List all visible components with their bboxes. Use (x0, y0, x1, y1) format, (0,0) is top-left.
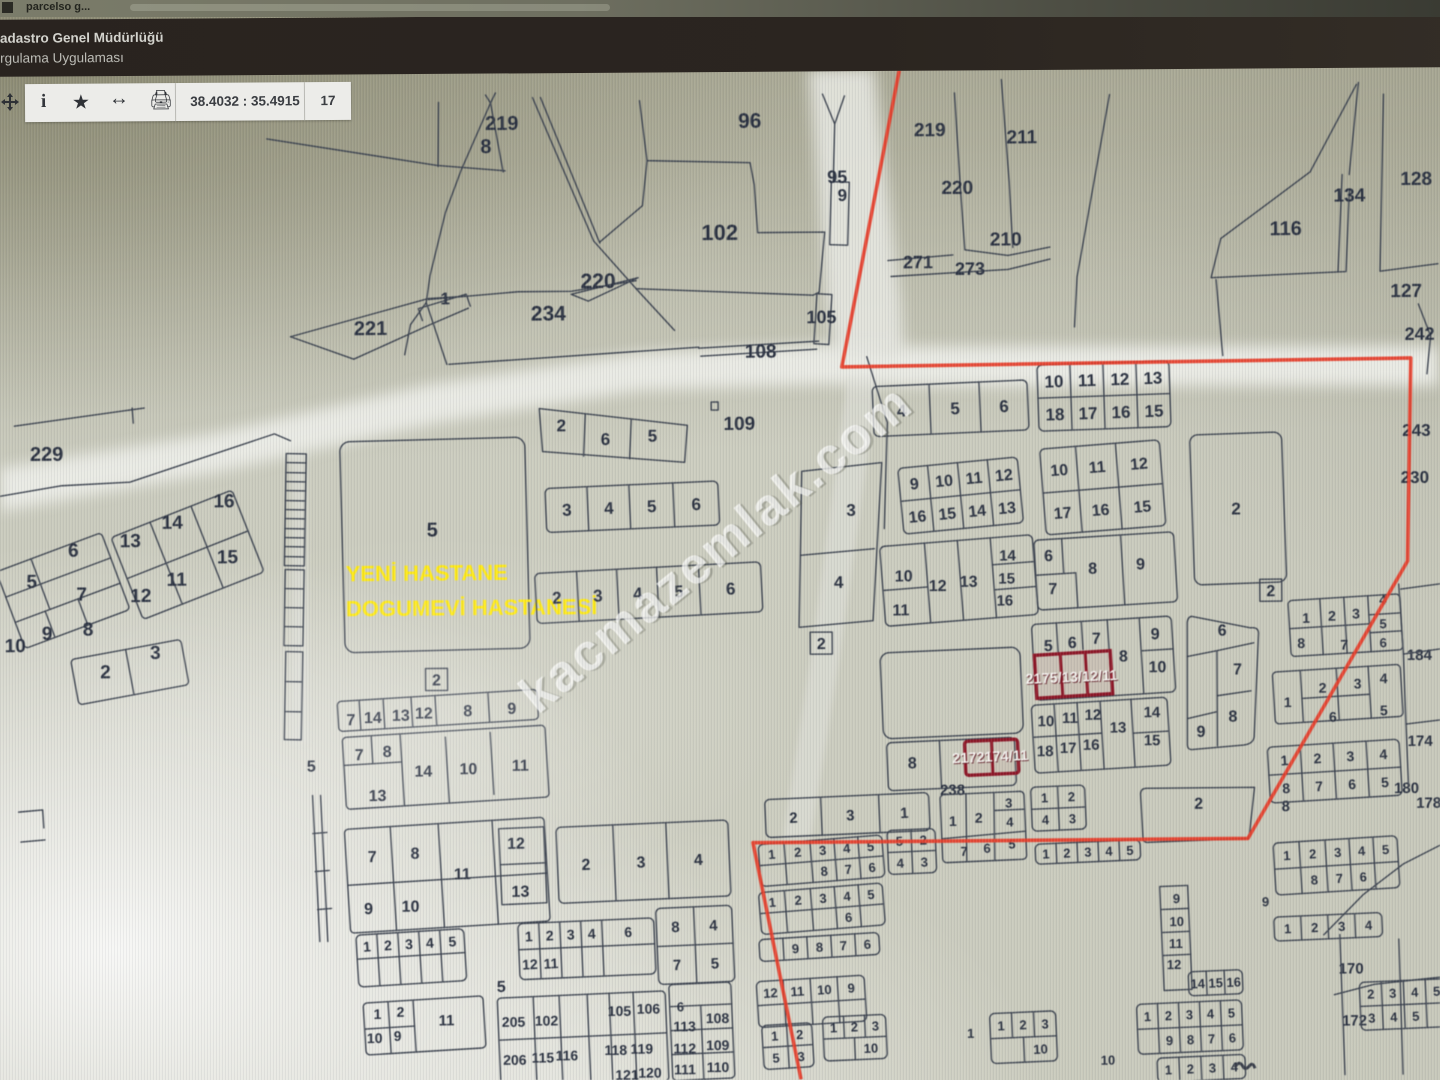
svg-text:16: 16 (996, 592, 1013, 609)
svg-text:15: 15 (1144, 732, 1161, 749)
svg-text:2: 2 (1068, 789, 1076, 804)
svg-text:12: 12 (994, 467, 1013, 486)
svg-text:5: 5 (1126, 843, 1134, 858)
svg-text:4: 4 (834, 573, 844, 592)
svg-text:9: 9 (1151, 626, 1160, 643)
svg-text:3: 3 (1368, 1010, 1376, 1025)
svg-text:9: 9 (838, 186, 848, 205)
svg-text:3: 3 (1346, 748, 1355, 764)
svg-text:11: 11 (892, 602, 909, 619)
svg-text:18: 18 (1045, 405, 1065, 425)
svg-text:9: 9 (847, 980, 855, 995)
svg-text:219: 219 (914, 120, 946, 141)
svg-text:1: 1 (1284, 921, 1292, 936)
svg-text:221: 221 (354, 318, 388, 340)
svg-text:5: 5 (1044, 638, 1053, 655)
svg-text:5: 5 (427, 519, 438, 541)
svg-text:1: 1 (997, 1018, 1005, 1033)
svg-text:13: 13 (369, 788, 387, 805)
svg-text:11: 11 (543, 955, 559, 972)
svg-text:2: 2 (789, 810, 798, 827)
svg-text:112: 112 (673, 1040, 696, 1056)
svg-text:4: 4 (1379, 746, 1388, 762)
svg-text:13: 13 (997, 500, 1016, 519)
svg-text:14: 14 (968, 502, 987, 521)
svg-text:8: 8 (1119, 648, 1128, 665)
svg-text:10: 10 (935, 472, 954, 491)
svg-text:243: 243 (1402, 421, 1431, 440)
svg-text:8: 8 (820, 863, 828, 879)
svg-text:2: 2 (817, 636, 826, 653)
svg-text:127: 127 (1390, 281, 1422, 302)
svg-text:4: 4 (709, 917, 719, 934)
svg-text:17: 17 (1078, 404, 1098, 424)
svg-text:8: 8 (411, 846, 420, 863)
svg-text:13: 13 (1110, 719, 1127, 736)
svg-text:1: 1 (949, 813, 957, 829)
svg-text:6: 6 (1068, 635, 1077, 652)
svg-text:12: 12 (1110, 370, 1130, 390)
svg-text:3: 3 (819, 891, 827, 907)
svg-text:8: 8 (1282, 780, 1291, 796)
svg-text:2: 2 (1186, 1061, 1194, 1076)
svg-text:10: 10 (895, 568, 913, 585)
svg-text:1: 1 (768, 847, 776, 863)
svg-text:11: 11 (439, 1012, 455, 1029)
svg-text:3: 3 (872, 1018, 880, 1033)
svg-text:3: 3 (150, 643, 161, 664)
svg-text:6: 6 (1380, 635, 1387, 650)
svg-text:3: 3 (1068, 811, 1076, 826)
svg-text:5: 5 (1381, 774, 1390, 790)
svg-text:8: 8 (815, 939, 823, 954)
svg-text:11: 11 (167, 570, 188, 591)
svg-text:8: 8 (1228, 708, 1237, 725)
svg-text:3: 3 (1208, 1060, 1216, 1075)
svg-text:3: 3 (846, 501, 856, 520)
svg-text:234: 234 (531, 302, 567, 325)
svg-text:kacmazemlak.com: kacmazemlak.com (509, 373, 924, 724)
svg-text:2: 2 (100, 662, 111, 683)
svg-text:7: 7 (1335, 871, 1343, 886)
svg-text:2: 2 (794, 845, 802, 861)
svg-text:10: 10 (1044, 372, 1064, 392)
svg-text:2: 2 (794, 893, 802, 909)
svg-text:5: 5 (772, 1050, 780, 1065)
svg-text:8: 8 (1088, 561, 1097, 578)
svg-text:8: 8 (1297, 635, 1305, 651)
svg-text:7: 7 (1048, 581, 1057, 598)
svg-text:4: 4 (1006, 814, 1014, 829)
svg-text:120: 120 (638, 1065, 662, 1080)
svg-text:13: 13 (1143, 368, 1163, 388)
svg-text:5: 5 (1379, 616, 1386, 631)
svg-text:9: 9 (42, 624, 53, 645)
svg-text:12: 12 (130, 586, 151, 607)
svg-text:2: 2 (1328, 608, 1336, 624)
svg-text:10: 10 (367, 1030, 383, 1046)
svg-text:6: 6 (677, 999, 684, 1014)
svg-text:3: 3 (405, 936, 414, 952)
svg-text:15: 15 (1208, 975, 1223, 991)
svg-text:12: 12 (1084, 707, 1101, 724)
svg-text:3: 3 (1334, 845, 1342, 860)
svg-text:4: 4 (843, 889, 852, 905)
svg-text:9: 9 (1136, 556, 1145, 573)
svg-text:9: 9 (394, 1028, 402, 1044)
svg-text:7: 7 (1208, 1031, 1216, 1046)
svg-text:1: 1 (768, 895, 776, 911)
svg-text:10: 10 (1033, 1041, 1048, 1057)
svg-text:13: 13 (511, 884, 529, 901)
svg-text:4: 4 (1380, 670, 1388, 686)
svg-text:4: 4 (426, 934, 435, 950)
svg-text:16: 16 (908, 508, 927, 527)
svg-text:2: 2 (545, 927, 554, 943)
svg-text:108: 108 (706, 1010, 730, 1026)
svg-text:13: 13 (960, 574, 978, 591)
svg-text:5: 5 (950, 399, 960, 418)
svg-text:5: 5 (497, 979, 506, 996)
svg-text:2: 2 (1309, 846, 1317, 861)
svg-text:7: 7 (355, 747, 364, 764)
svg-text:12: 12 (507, 836, 525, 853)
svg-text:10: 10 (863, 1040, 878, 1056)
svg-text:1: 1 (830, 1020, 838, 1035)
svg-text:16: 16 (1226, 974, 1241, 990)
svg-text:10: 10 (1101, 1053, 1116, 1068)
svg-text:8: 8 (83, 619, 94, 640)
svg-text:5: 5 (648, 427, 658, 446)
svg-text:7: 7 (368, 849, 377, 866)
svg-text:3: 3 (1352, 605, 1360, 621)
svg-text:1: 1 (900, 805, 909, 822)
svg-text:7: 7 (1233, 661, 1242, 678)
svg-text:8: 8 (671, 919, 680, 936)
svg-text:1: 1 (967, 1026, 974, 1041)
svg-text:3: 3 (593, 586, 603, 605)
svg-text:16: 16 (1111, 403, 1131, 423)
svg-text:3: 3 (920, 854, 928, 869)
svg-text:14: 14 (1143, 704, 1160, 721)
svg-text:2: 2 (1164, 1008, 1172, 1023)
svg-text:13: 13 (120, 531, 141, 552)
svg-text:178: 178 (1416, 795, 1440, 812)
svg-text:2: 2 (432, 672, 441, 689)
svg-text:11: 11 (1169, 936, 1183, 951)
svg-text:4: 4 (1411, 985, 1420, 1000)
svg-text:1: 1 (1164, 1062, 1172, 1077)
svg-text:2: 2 (552, 588, 562, 607)
svg-text:3: 3 (846, 807, 855, 824)
svg-text:9: 9 (507, 701, 516, 718)
svg-text:8: 8 (908, 755, 917, 772)
svg-text:5: 5 (1227, 1005, 1235, 1020)
svg-text:210: 210 (990, 229, 1022, 250)
svg-text:11: 11 (1078, 371, 1097, 391)
svg-text:2: 2 (1313, 750, 1322, 766)
svg-text:4: 4 (604, 499, 615, 518)
svg-text:16: 16 (1091, 502, 1110, 520)
svg-text:11: 11 (790, 983, 805, 999)
svg-text:8: 8 (480, 136, 491, 158)
svg-text:6: 6 (1359, 869, 1367, 884)
svg-text:106: 106 (637, 1001, 661, 1017)
svg-text:219: 219 (485, 113, 519, 135)
svg-text:5: 5 (710, 955, 719, 972)
svg-text:15: 15 (217, 547, 239, 568)
svg-text:2: 2 (1266, 583, 1275, 600)
svg-text:16: 16 (1083, 737, 1100, 754)
svg-text:6: 6 (624, 924, 633, 940)
svg-text:11: 11 (965, 470, 984, 489)
svg-text:7: 7 (1315, 778, 1324, 794)
svg-text:105: 105 (608, 1003, 632, 1019)
svg-text:8: 8 (1187, 1032, 1195, 1047)
svg-text:8: 8 (1310, 872, 1318, 887)
svg-text:18: 18 (1037, 743, 1054, 760)
svg-text:5: 5 (307, 759, 316, 776)
svg-text:2: 2 (1367, 986, 1375, 1001)
svg-text:9: 9 (1262, 894, 1269, 909)
svg-text:7: 7 (1340, 637, 1348, 653)
svg-text:7: 7 (844, 862, 852, 878)
svg-text:116: 116 (1269, 218, 1301, 240)
svg-text:7: 7 (76, 585, 87, 606)
svg-text:14: 14 (1190, 976, 1206, 992)
svg-text:118: 118 (604, 1042, 627, 1058)
svg-text:2: 2 (1231, 499, 1241, 518)
svg-text:170: 170 (1339, 960, 1364, 977)
svg-text:2: 2 (396, 1004, 404, 1020)
svg-text:273: 273 (955, 259, 985, 279)
svg-text:115: 115 (531, 1049, 554, 1065)
svg-text:119: 119 (630, 1041, 653, 1057)
svg-text:3: 3 (1338, 919, 1346, 934)
svg-text:6: 6 (1348, 776, 1357, 792)
svg-text:9: 9 (909, 476, 920, 494)
svg-text:2: 2 (975, 810, 983, 826)
svg-text:5: 5 (1412, 1009, 1420, 1024)
svg-text:220: 220 (580, 270, 615, 293)
svg-text:9: 9 (791, 941, 799, 956)
svg-text:1: 1 (1144, 1009, 1152, 1024)
svg-text:9: 9 (364, 901, 373, 918)
svg-text:4: 4 (1365, 918, 1374, 933)
svg-text:12: 12 (929, 578, 947, 595)
svg-text:2: 2 (1319, 680, 1327, 696)
svg-text:7: 7 (839, 938, 847, 953)
svg-text:105: 105 (806, 307, 836, 327)
svg-text:13: 13 (392, 708, 410, 725)
svg-text:4: 4 (1105, 844, 1114, 859)
svg-text:6: 6 (691, 495, 701, 514)
svg-text:1: 1 (1302, 610, 1310, 626)
svg-text:6: 6 (1229, 1030, 1237, 1045)
svg-text:271: 271 (903, 252, 933, 272)
svg-text:6: 6 (1218, 623, 1227, 640)
svg-text:3: 3 (1185, 1007, 1193, 1022)
svg-text:3: 3 (636, 854, 646, 871)
svg-text:YENİ HASTANE: YENİ HASTANE (346, 560, 508, 586)
svg-text:4: 4 (1390, 1009, 1399, 1024)
svg-text:3: 3 (1084, 844, 1092, 859)
svg-text:11: 11 (1062, 710, 1078, 727)
svg-text:10: 10 (402, 899, 420, 916)
svg-text:10: 10 (817, 982, 832, 998)
svg-text:9: 9 (1173, 891, 1180, 906)
svg-text:7: 7 (346, 712, 355, 729)
svg-text:2: 2 (581, 857, 591, 874)
svg-text:17: 17 (1060, 740, 1077, 757)
svg-text:6: 6 (983, 841, 990, 856)
svg-text:10: 10 (1050, 462, 1069, 480)
svg-text:102: 102 (535, 1012, 559, 1028)
svg-text:12: 12 (1130, 456, 1149, 474)
svg-text:113: 113 (673, 1018, 696, 1034)
svg-text:11: 11 (454, 866, 471, 883)
svg-text:5: 5 (1380, 702, 1388, 718)
svg-text:5: 5 (867, 887, 875, 903)
svg-text:4: 4 (694, 852, 704, 869)
svg-text:14: 14 (999, 547, 1016, 564)
svg-text:109: 109 (723, 414, 755, 435)
svg-text:11: 11 (1088, 459, 1106, 477)
svg-text:5: 5 (448, 933, 457, 949)
svg-text:206: 206 (503, 1052, 527, 1068)
svg-text:110: 110 (707, 1059, 730, 1075)
svg-text:7: 7 (960, 844, 967, 859)
svg-text:8: 8 (463, 703, 472, 720)
svg-text:7: 7 (1092, 631, 1101, 648)
svg-text:10: 10 (1149, 659, 1167, 676)
svg-text:1: 1 (1041, 790, 1049, 805)
svg-text:230: 230 (1401, 468, 1430, 487)
svg-text:10: 10 (459, 761, 477, 778)
svg-text:12: 12 (763, 985, 778, 1001)
svg-text:1: 1 (1284, 694, 1292, 710)
svg-text:238: 238 (940, 782, 965, 799)
svg-text:220: 220 (941, 178, 973, 199)
svg-text:6: 6 (999, 397, 1009, 416)
svg-text:1: 1 (525, 928, 534, 944)
svg-text:211: 211 (1006, 127, 1037, 148)
svg-text:9: 9 (1166, 1033, 1174, 1048)
svg-text:2: 2 (557, 416, 567, 435)
svg-text:229: 229 (30, 444, 64, 466)
svg-text:15: 15 (938, 505, 957, 524)
svg-text:2: 2 (851, 1019, 859, 1034)
svg-text:5: 5 (26, 572, 37, 593)
svg-text:12: 12 (522, 956, 538, 973)
svg-text:2: 2 (796, 1027, 804, 1042)
svg-text:242: 242 (1404, 324, 1434, 344)
svg-text:6: 6 (863, 937, 871, 952)
svg-text:4: 4 (896, 855, 905, 870)
svg-text:1: 1 (1283, 848, 1291, 863)
svg-text:6: 6 (1044, 548, 1053, 565)
svg-text:109: 109 (706, 1037, 730, 1053)
svg-text:3: 3 (1354, 675, 1362, 691)
svg-text:4: 4 (1358, 843, 1367, 858)
svg-text:1: 1 (440, 289, 450, 308)
svg-text:6: 6 (601, 430, 611, 449)
svg-text:2: 2 (384, 937, 393, 953)
svg-text:9: 9 (1197, 724, 1206, 741)
svg-text:1: 1 (771, 1028, 779, 1043)
svg-text:2: 2 (1063, 845, 1071, 860)
svg-text:4: 4 (587, 925, 596, 941)
svg-text:4: 4 (1206, 1006, 1215, 1021)
svg-text:16: 16 (213, 491, 234, 512)
svg-text:15: 15 (1133, 498, 1152, 516)
svg-text:1: 1 (1042, 846, 1050, 861)
svg-text:17: 17 (1053, 505, 1072, 523)
svg-text:96: 96 (738, 110, 762, 133)
svg-text:14: 14 (364, 710, 382, 727)
svg-text:2: 2 (1019, 1017, 1027, 1032)
svg-text:108: 108 (745, 342, 777, 363)
svg-text:121: 121 (615, 1067, 639, 1080)
svg-text:12: 12 (1167, 957, 1182, 972)
svg-text:14: 14 (414, 764, 432, 781)
svg-text:205: 205 (502, 1014, 526, 1030)
svg-text:174: 174 (1408, 733, 1434, 750)
svg-text:6: 6 (1329, 709, 1337, 725)
svg-text:11: 11 (512, 758, 529, 775)
svg-text:10: 10 (5, 636, 26, 657)
svg-text:1: 1 (363, 938, 372, 954)
svg-text:5: 5 (1382, 842, 1390, 857)
svg-text:3: 3 (1389, 986, 1397, 1001)
svg-text:5: 5 (1433, 984, 1440, 999)
svg-text:3: 3 (1041, 1016, 1049, 1031)
svg-text:3: 3 (1005, 795, 1012, 810)
svg-text:95: 95 (827, 167, 847, 187)
svg-text:3: 3 (562, 501, 572, 520)
svg-text:2: 2 (1311, 920, 1319, 935)
svg-text:15: 15 (1144, 401, 1164, 421)
svg-text:102: 102 (701, 220, 738, 245)
svg-text:10: 10 (1169, 914, 1184, 929)
svg-text:111: 111 (674, 1061, 696, 1077)
svg-text:6: 6 (68, 541, 79, 562)
svg-text:7: 7 (673, 957, 682, 974)
svg-text:128: 128 (1400, 169, 1432, 190)
svg-text:14: 14 (162, 513, 184, 534)
svg-text:5: 5 (647, 497, 657, 516)
svg-text:6: 6 (868, 860, 876, 876)
svg-text:15: 15 (998, 570, 1015, 587)
svg-text:3: 3 (818, 843, 826, 859)
svg-text:6: 6 (844, 910, 852, 926)
svg-text:12: 12 (415, 706, 433, 723)
svg-text:172: 172 (1342, 1012, 1367, 1029)
svg-text:10: 10 (1038, 713, 1055, 730)
svg-text:184: 184 (1407, 647, 1433, 664)
svg-text:8: 8 (383, 744, 392, 761)
svg-text:2: 2 (1194, 796, 1203, 813)
svg-text:8: 8 (1281, 798, 1289, 815)
svg-text:2172174/11: 2172174/11 (952, 748, 1028, 767)
svg-text:4: 4 (1042, 812, 1051, 827)
svg-text:3: 3 (566, 926, 575, 942)
svg-text:116: 116 (555, 1047, 578, 1063)
svg-text:1: 1 (374, 1006, 382, 1022)
svg-text:134: 134 (1333, 185, 1365, 206)
svg-text:6: 6 (725, 579, 735, 598)
